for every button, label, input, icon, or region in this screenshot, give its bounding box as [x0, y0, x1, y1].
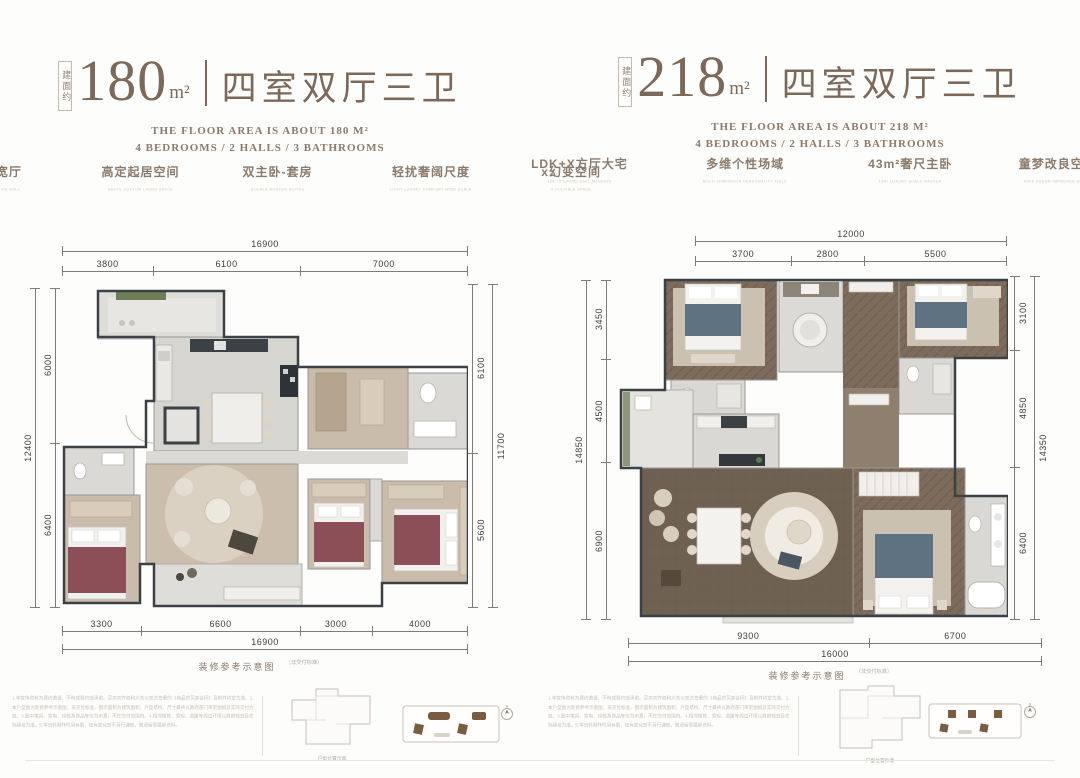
dim-left-segments-180: 6000 6400: [40, 288, 56, 608]
keyplan-outline-180: [286, 686, 378, 750]
plan-title-zh: 四室双厅三卫: [222, 60, 462, 111]
tag-en: VILLA QUALITY BRIGHT WIDE HALL: [0, 188, 20, 192]
area-value-180: 180: [77, 52, 167, 110]
feature-tag: 多维个性场域 MULTI-DIMENSION PERSONALITY FIELD: [652, 155, 838, 180]
tag-zh: 双主卧-套房: [224, 163, 331, 180]
feature-tag: LDK+X方厅大宅 LDK+X GRAND HALL MANSION: [507, 155, 652, 180]
tag-zh: 多维个性场域: [661, 155, 829, 172]
keyplan-outline-218: [832, 684, 927, 752]
disclaimer-218: 1.本宣传资料为要约邀请，不构成要约或承诺，买卖双方权利义务以双方签署的《商品房…: [548, 694, 790, 756]
compass-icon: [502, 705, 513, 720]
floorplan-drawing-218: [613, 272, 1008, 624]
dim-right-segments-218: 3100 4850 6400: [1014, 276, 1030, 620]
keyplan-caption-218: 户型位置示意: [822, 752, 937, 770]
tag-zh: 童梦改良空间: [991, 155, 1080, 172]
title-divider: [205, 60, 207, 106]
keyplan-caption-180: 户型位置示意: [276, 750, 388, 768]
footer-divider: [798, 696, 799, 756]
dim-right-segments-180: 6100 5600: [472, 284, 488, 608]
plan-caption-218: 装修参考示意图（非交付标准）: [628, 666, 1042, 684]
tag-en: DOUBLE MASTER SUITES: [251, 188, 305, 192]
dim-bottom-segments-218: 9300 6700: [628, 628, 1042, 644]
area-prefix-badge: 建面约: [58, 61, 72, 111]
tag-zh: 轻扰奢阔尺度: [349, 163, 513, 180]
area-value-218: 218: [637, 48, 727, 106]
tag-zh: 墅质通明宽厅: [0, 163, 57, 180]
area-unit: m²: [169, 82, 189, 104]
disclaimer-180: 1.本宣传资料为要约邀请，不构成要约或承诺，买卖双方权利义务以双方签署的《商品房…: [12, 694, 254, 756]
tag-en: HAUTE CUSTOM LIVING SPACE: [108, 188, 173, 192]
feature-tag: 43m²奢尺主卧 43M² LUXURY SCALE MASTER: [838, 155, 982, 180]
plan-subtitle-en: THE FLOOR AREA IS ABOUT 218 M² 4 BEDROOM…: [600, 119, 1040, 153]
dim-top-total-180: 16900: [62, 236, 468, 252]
title-divider: [765, 56, 767, 102]
footer-rule: [25, 760, 1055, 761]
floorplan-poster: 建面约 180 m² 四室双厅三卫 THE FLOOR AREA IS ABOU…: [0, 0, 1080, 778]
dim-left-total-218: 14850: [571, 280, 587, 620]
dim-top-segments-218: 3700 2800 5500: [695, 246, 1007, 262]
dim-top-total-218: 12000: [695, 226, 1007, 242]
dim-right-total-180: 11700: [492, 284, 508, 608]
area-unit: m²: [729, 78, 749, 100]
footer-divider: [262, 696, 263, 756]
plan-title-zh: 四室双厅三卫: [782, 56, 1022, 107]
feature-tag: 墅质通明宽厅 VILLA QUALITY BRIGHT WIDE HALL: [0, 163, 66, 188]
tag-zh: LDK+X方厅大宅: [516, 155, 643, 172]
unit-location-diagram-180: [402, 700, 514, 746]
compass-icon: [1025, 703, 1036, 718]
dim-top-segments-180: 3800 6100 7000: [62, 256, 468, 272]
unit-location-diagram-218: [928, 696, 1038, 744]
tag-en: X FLEXIBLE SPACE: [551, 188, 591, 192]
plan-caption-180: 装修参考示意图（非交付标准）: [62, 657, 468, 675]
floorplan-drawing-180: [62, 281, 468, 611]
tag-en: MULTI-DIMENSION PERSONALITY FIELD: [703, 180, 787, 184]
feature-tags-218: LDK+X方厅大宅 LDK+X GRAND HALL MANSION 多维个性场…: [590, 155, 1050, 180]
feature-tag: 轻扰奢阔尺度 LIGHT LUXURY COMFORT WIDE SCALE: [340, 163, 522, 188]
dim-right-total-218: 14350: [1034, 276, 1050, 620]
dim-bottom-segments-180: 3300 6600 3000 4000: [62, 616, 468, 632]
dim-bottom-total-180: 16900: [62, 634, 468, 650]
feature-tag: 童梦改良空间 KIDS DREAM IMPROVED SPACE: [982, 155, 1080, 180]
tag-en: LDK+X GRAND HALL MANSION: [548, 180, 612, 184]
feature-tags-180: 墅质通明宽厅 VILLA QUALITY BRIGHT WIDE HALL 高定…: [40, 163, 480, 188]
plan-180-header: 建面约 180 m² 四室双厅三卫 THE FLOOR AREA IS ABOU…: [40, 52, 480, 157]
dim-left-segments-218: 3450 4500 6900: [591, 280, 607, 620]
feature-tag: 高定起居空间 HAUTE CUSTOM LIVING SPACE: [66, 163, 215, 188]
tag-en: LIGHT LUXURY COMFORT WIDE SCALE: [390, 188, 472, 192]
tag-zh: 高定起居空间: [75, 163, 206, 180]
dim-left-total-180: 12400: [20, 288, 36, 608]
tag-en: KIDS DREAM IMPROVED SPACE: [1025, 180, 1080, 184]
dim-bottom-total-218: 16000: [628, 646, 1042, 662]
feature-tag: 双主卧-套房 DOUBLE MASTER SUITES: [215, 163, 340, 188]
tag-en: 43M² LUXURY SCALE MASTER: [879, 180, 942, 184]
plan-subtitle-en: THE FLOOR AREA IS ABOUT 180 M² 4 BEDROOM…: [40, 123, 480, 157]
area-prefix-badge: 建面约: [618, 57, 632, 107]
plan-218-header: 建面约 218 m² 四室双厅三卫 THE FLOOR AREA IS ABOU…: [600, 48, 1040, 153]
tag-zh: 43m²奢尺主卧: [847, 155, 973, 172]
